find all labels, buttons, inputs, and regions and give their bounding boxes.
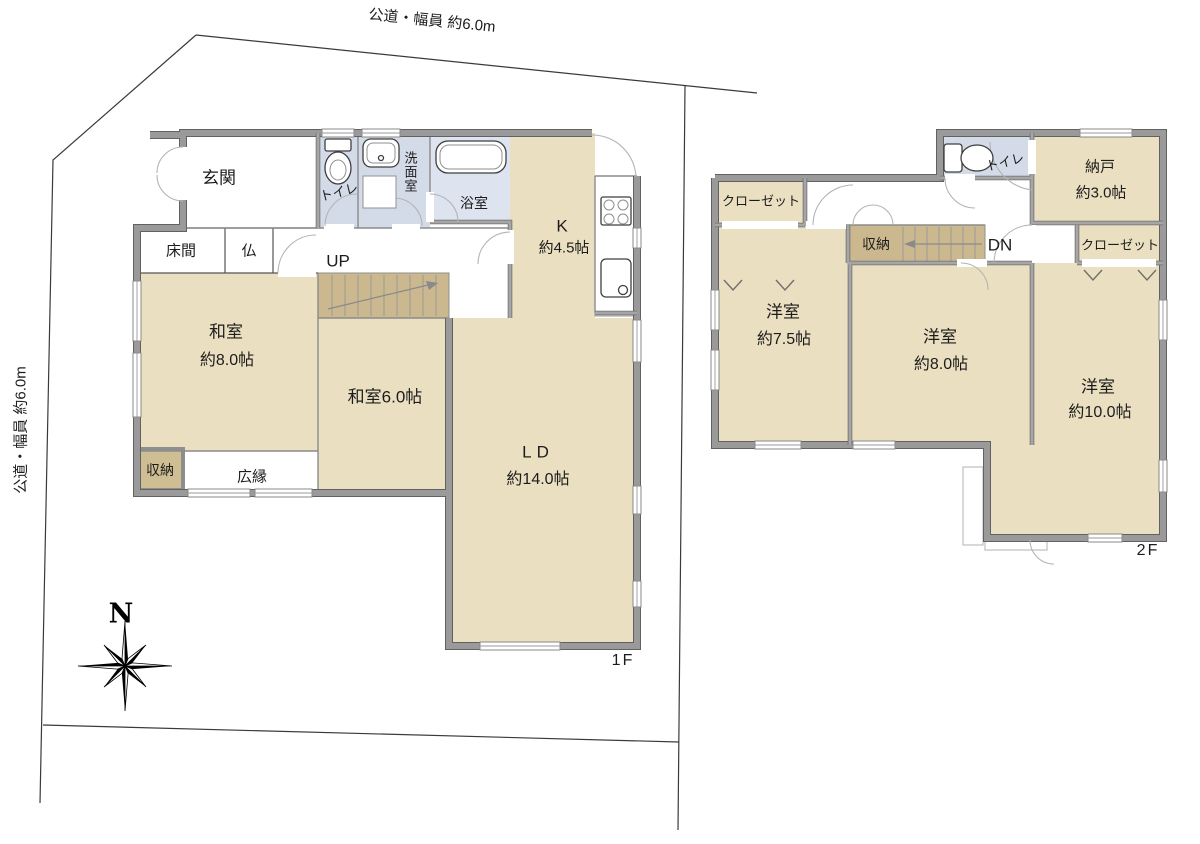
sink-icon — [363, 139, 399, 167]
room-label-yoshitsu8: 洋室 — [923, 329, 957, 346]
floorplan-page: 公道・幅員 約6.0m 公道・幅員 約6.0m N 玄関 トイレ 洗面室 浴室 … — [0, 0, 1200, 844]
room-size-nando: 約3.0帖 — [1076, 186, 1127, 201]
room-label-tokonoma: 床間 — [166, 244, 196, 259]
room-size-yoshitsu8: 約8.0帖 — [914, 357, 968, 373]
road-left-label: 公道・幅員 約6.0m — [14, 366, 29, 494]
floorplan-canvas — [0, 0, 1200, 844]
room-size-washitsu8: 約8.0帖 — [200, 353, 254, 369]
room-label-washitsu8: 和室 — [209, 324, 243, 341]
washer-pan-icon — [363, 176, 396, 208]
room-size-living: 約14.0帖 — [506, 472, 569, 488]
room-label-hiroen: 広縁 — [237, 470, 267, 485]
stairs-down-label: DN — [988, 237, 1013, 254]
room-label-storage2: 収納 — [862, 237, 890, 251]
room-size-yoshitsu10: 約10.0帖 — [1068, 405, 1131, 421]
toilet-icon — [325, 139, 351, 184]
room-label-closet-right: クローゼット — [1081, 239, 1159, 252]
yoshitsu8-floor — [850, 263, 1032, 445]
room-label-washroom: 洗面室 — [404, 151, 417, 193]
room-label-butsuma: 仏 — [241, 244, 256, 259]
room-size-yoshitsu75: 約7.5帖 — [757, 332, 811, 348]
stove-icon — [601, 197, 631, 225]
compass-north-label: N — [109, 601, 134, 628]
room-label-storage1: 収納 — [146, 463, 174, 477]
room-label-kitchen: K — [556, 218, 567, 235]
nando-floor — [1032, 133, 1163, 223]
room-label-genkan: 玄関 — [202, 170, 236, 187]
room-label-living: LD — [522, 444, 554, 461]
kitchen-sink-icon — [601, 259, 631, 297]
kitchen-floor — [510, 133, 595, 318]
room-size-kitchen: 約4.5帖 — [539, 241, 590, 256]
room-label-bathroom: 浴室 — [460, 196, 488, 210]
room-label-closet-left: クローゼット — [722, 195, 800, 208]
bathtub-icon — [436, 141, 506, 173]
stairs-up-label: UP — [326, 253, 350, 270]
compass-rose-icon — [78, 621, 172, 711]
room-label-yoshitsu10: 洋室 — [1081, 379, 1115, 396]
floor2-label: 2F — [1137, 543, 1160, 559]
floor1-label: 1F — [612, 653, 635, 669]
room-label-nando: 納戸 — [1085, 160, 1115, 175]
room-label-washitsu6: 和室6.0帖 — [348, 389, 423, 406]
room-label-yoshitsu75: 洋室 — [766, 304, 800, 321]
